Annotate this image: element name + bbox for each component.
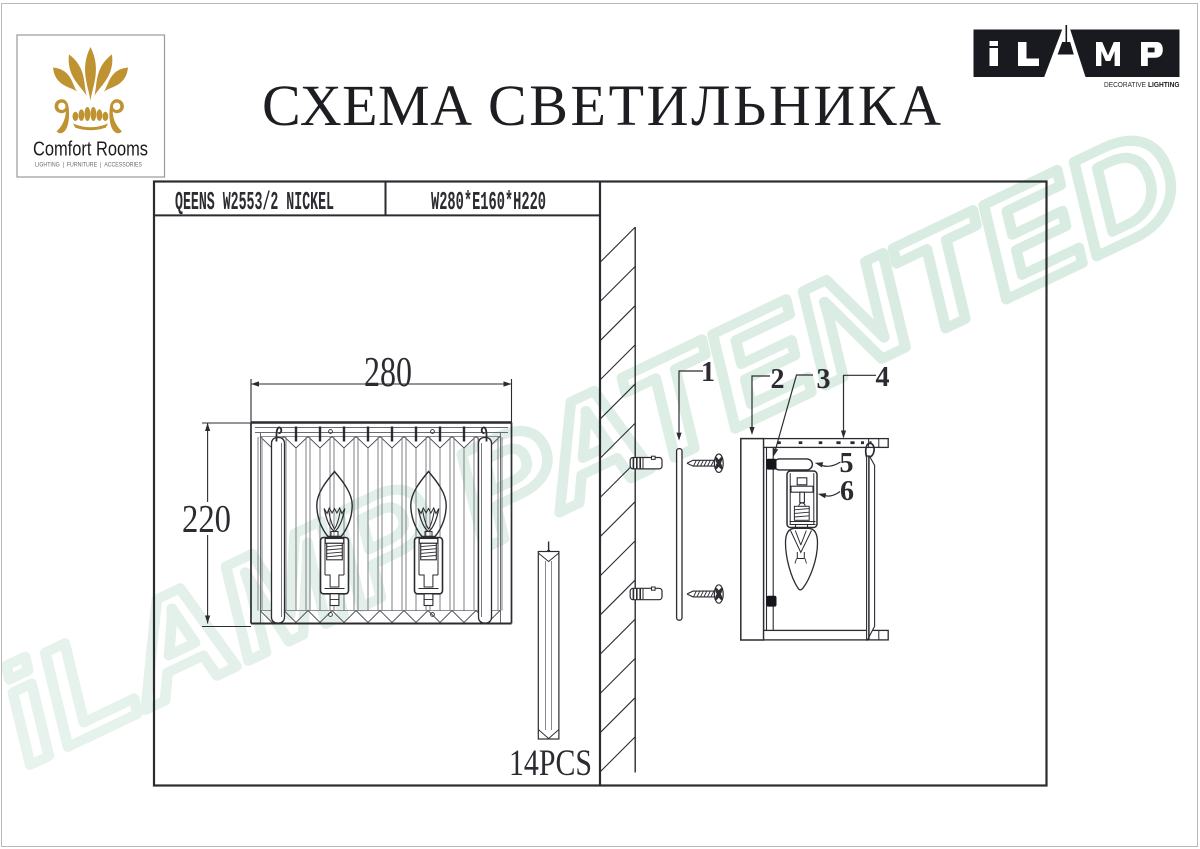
svg-text:Comfort Rooms: Comfort Rooms xyxy=(33,139,148,161)
svg-text:1: 1 xyxy=(701,357,715,388)
svg-text:280: 280 xyxy=(364,350,412,396)
svg-text:LIGHTING: LIGHTING xyxy=(1148,80,1180,89)
svg-text:5: 5 xyxy=(840,448,854,479)
svg-text:QEENS W2553/2 NICKEL: QEENS W2553/2 NICKEL xyxy=(175,187,334,217)
svg-text:2: 2 xyxy=(771,364,785,395)
svg-text:6: 6 xyxy=(840,476,854,507)
svg-text:14PCS: 14PCS xyxy=(509,743,592,784)
svg-text:СХЕМА: СХЕМА xyxy=(262,73,472,138)
svg-text:W280*E160*H220: W280*E160*H220 xyxy=(431,187,546,217)
svg-text:LIGHTING | FURNITURE | ACC: LIGHTING | FURNITURE | ACCESSORIES xyxy=(35,162,142,169)
svg-text:4: 4 xyxy=(876,362,890,393)
svg-text:DECORATIVE: DECORATIVE xyxy=(1104,80,1146,89)
svg-text:3: 3 xyxy=(817,364,831,395)
svg-text:220: 220 xyxy=(182,498,231,541)
svg-text:СВЕТИЛЬНИКА: СВЕТИЛЬНИКА xyxy=(488,73,941,138)
